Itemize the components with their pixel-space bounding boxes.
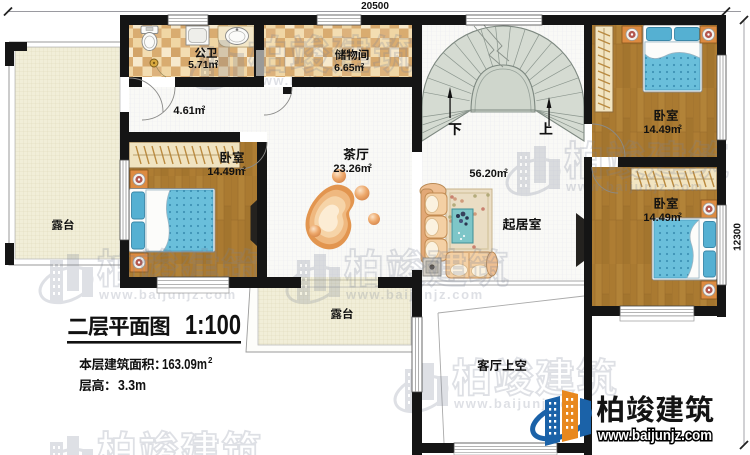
svg-text:1:100: 1:100 <box>185 309 241 340</box>
svg-text:2: 2 <box>678 124 682 131</box>
svg-text:23.26m: 23.26m <box>333 163 371 175</box>
svg-text:12300: 12300 <box>733 223 744 251</box>
svg-text:2: 2 <box>678 212 682 219</box>
svg-text:2: 2 <box>202 105 206 112</box>
svg-text:3.3m: 3.3m <box>118 378 146 394</box>
svg-text:14.49m: 14.49m <box>207 166 245 178</box>
svg-text:2: 2 <box>504 168 508 175</box>
svg-text:4.61m: 4.61m <box>173 105 204 117</box>
svg-text:www.baijunjz.com: www.baijunjz.com <box>597 428 712 444</box>
svg-text:2: 2 <box>368 163 372 170</box>
svg-text:6.65m: 6.65m <box>334 62 364 74</box>
svg-text:163.09m: 163.09m <box>162 357 207 373</box>
svg-text:14.49m: 14.49m <box>643 124 681 136</box>
svg-text:2: 2 <box>208 356 213 365</box>
svg-text:5.71m: 5.71m <box>188 59 218 71</box>
svg-text:2: 2 <box>215 60 219 67</box>
svg-text:2: 2 <box>242 166 246 173</box>
svg-text:20500: 20500 <box>361 1 389 12</box>
svg-text:56.20m: 56.20m <box>469 168 507 180</box>
svg-text:2: 2 <box>361 63 365 70</box>
svg-text:14.49m: 14.49m <box>643 212 681 224</box>
